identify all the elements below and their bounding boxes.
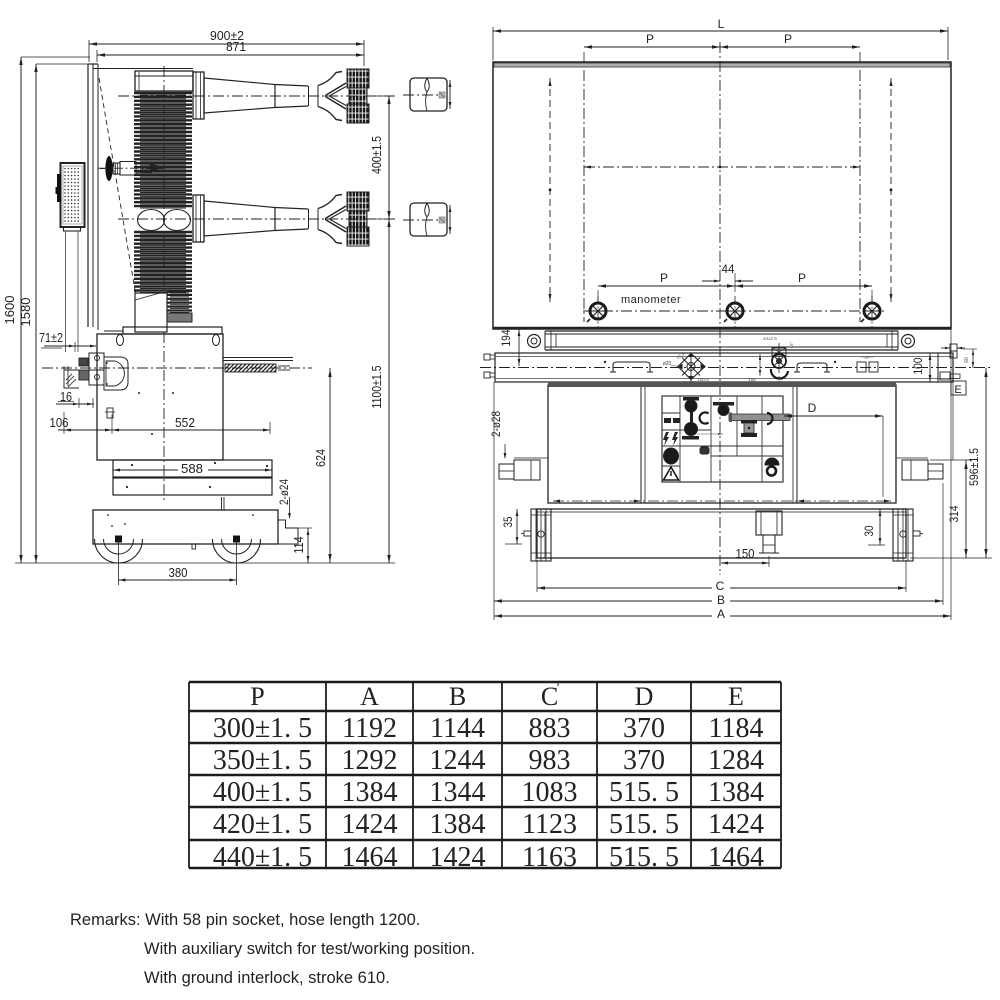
svg-text:45°: 45° [789, 341, 794, 348]
svg-text:1100±1.5: 1100±1.5 [369, 366, 384, 409]
svg-text:188: 188 [748, 377, 756, 382]
svg-text:552: 552 [175, 415, 195, 430]
svg-text:ø20: ø20 [663, 361, 672, 367]
svg-text:588: 588 [181, 461, 203, 476]
svg-text:2-ø28: 2-ø28 [489, 411, 503, 437]
svg-text:1384: 1384 [342, 777, 398, 808]
svg-text:With ground interlock, stroke: With ground interlock, stroke 610. [144, 969, 390, 987]
svg-text:100: 100 [911, 357, 925, 374]
svg-text:manometer: manometer [621, 294, 681, 306]
svg-text:515. 5: 515. 5 [609, 809, 679, 840]
svg-text:P: P [660, 271, 668, 285]
svg-text:47: 47 [864, 355, 870, 360]
svg-text:314: 314 [947, 505, 961, 522]
svg-text:1292: 1292 [342, 745, 398, 776]
svg-text:C: C [716, 579, 725, 593]
svg-text:L: L [718, 17, 725, 31]
svg-text:2-ø24: 2-ø24 [277, 479, 291, 505]
svg-text:1284: 1284 [708, 745, 764, 776]
svg-text:1424: 1424 [342, 809, 398, 840]
svg-text:B: B [449, 682, 466, 711]
svg-text:106: 106 [50, 415, 69, 430]
svg-text:596±1.5: 596±1.5 [967, 448, 981, 486]
svg-text:440±1. 5: 440±1. 5 [213, 842, 312, 873]
svg-text:1244: 1244 [430, 745, 486, 776]
svg-text:370: 370 [623, 745, 665, 776]
svg-text:1344: 1344 [430, 777, 486, 808]
svg-text:D: D [808, 401, 817, 415]
svg-text:624: 624 [313, 449, 328, 467]
svg-text:44±1.5: 44±1.5 [763, 336, 777, 341]
svg-text:35: 35 [501, 516, 515, 527]
svg-text:1600: 1600 [3, 295, 17, 324]
svg-text:150: 150 [736, 546, 755, 561]
svg-text:44: 44 [722, 262, 735, 276]
svg-text:1083: 1083 [522, 777, 578, 808]
svg-text:’: ’ [556, 680, 560, 694]
svg-text:370: 370 [623, 713, 665, 744]
svg-text:1184: 1184 [709, 713, 764, 744]
svg-text:71±2: 71±2 [39, 330, 63, 345]
svg-text:1464: 1464 [342, 842, 398, 873]
svg-text:P: P [798, 271, 806, 285]
svg-text:1384: 1384 [708, 777, 764, 808]
svg-text:1384: 1384 [430, 809, 486, 840]
svg-text:400±1.5: 400±1.5 [369, 136, 384, 174]
svg-text:194: 194 [499, 329, 513, 346]
svg-text:D: D [635, 682, 654, 711]
svg-text:983: 983 [529, 745, 571, 776]
svg-text:1192: 1192 [342, 713, 397, 744]
svg-text:A: A [360, 682, 379, 711]
svg-text:B: B [717, 593, 725, 607]
svg-text:1464: 1464 [708, 842, 764, 873]
svg-text:P: P [250, 682, 264, 711]
svg-text:883: 883 [529, 713, 571, 744]
svg-text:1580: 1580 [19, 297, 33, 326]
svg-text:515. 5: 515. 5 [609, 842, 679, 873]
svg-text:871: 871 [226, 39, 246, 54]
svg-text:380: 380 [169, 565, 188, 580]
svg-text:420±1. 5: 420±1. 5 [213, 809, 312, 840]
svg-text:350±1. 5: 350±1. 5 [213, 745, 312, 776]
svg-text:60: 60 [964, 357, 970, 363]
svg-text:Remarks: With 58 pin socket, h: Remarks: With 58 pin socket, hose length… [70, 911, 420, 929]
svg-text:300±1. 5: 300±1. 5 [213, 713, 312, 744]
svg-text:E: E [728, 682, 744, 711]
svg-text:E: E [954, 384, 961, 396]
svg-text:1424: 1424 [708, 809, 764, 840]
svg-text:515. 5: 515. 5 [609, 777, 679, 808]
svg-text:1144: 1144 [430, 713, 485, 744]
svg-text:1163: 1163 [522, 842, 577, 873]
svg-text:30: 30 [862, 525, 876, 536]
svg-text:114: 114 [292, 536, 306, 553]
svg-text:1424: 1424 [430, 842, 486, 873]
svg-text:P: P [646, 32, 654, 46]
svg-text:100.5: 100.5 [697, 377, 709, 382]
svg-text:With auxiliary switch for test: With auxiliary switch for test/working p… [144, 940, 475, 958]
svg-text:1123: 1123 [522, 809, 577, 840]
svg-text:P: P [784, 32, 792, 46]
svg-text:A: A [717, 607, 725, 621]
svg-text:400±1. 5: 400±1. 5 [213, 777, 312, 808]
